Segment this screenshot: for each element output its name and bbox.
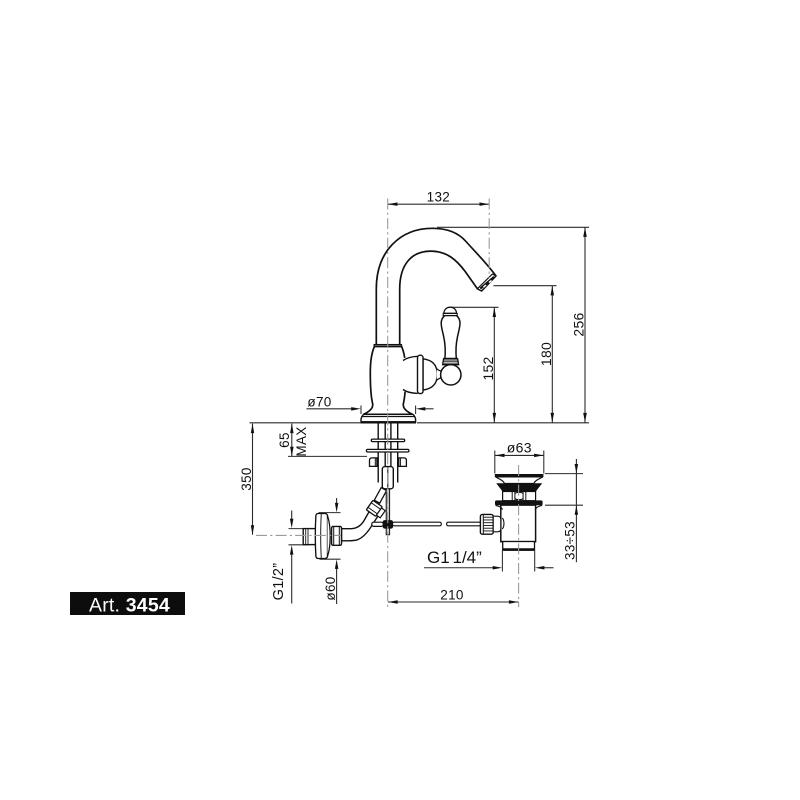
svg-text:Art. 3454: Art. 3454 xyxy=(89,595,170,617)
svg-text:210: 210 xyxy=(440,588,463,603)
svg-text:MAX: MAX xyxy=(294,426,309,456)
svg-text:ø60: ø60 xyxy=(323,576,338,600)
svg-text:65: 65 xyxy=(277,432,292,448)
svg-text:350: 350 xyxy=(239,467,254,490)
svg-text:180: 180 xyxy=(538,342,554,366)
svg-text:256: 256 xyxy=(571,312,587,336)
svg-text:132: 132 xyxy=(427,190,450,205)
svg-text:152: 152 xyxy=(480,356,496,380)
svg-text:33÷53: 33÷53 xyxy=(563,521,578,560)
svg-text:G11/4”: G11/4” xyxy=(427,548,482,567)
svg-text:G1/2”: G1/2” xyxy=(271,563,287,601)
svg-text:ø63: ø63 xyxy=(507,440,532,456)
svg-text:ø70: ø70 xyxy=(307,395,331,410)
